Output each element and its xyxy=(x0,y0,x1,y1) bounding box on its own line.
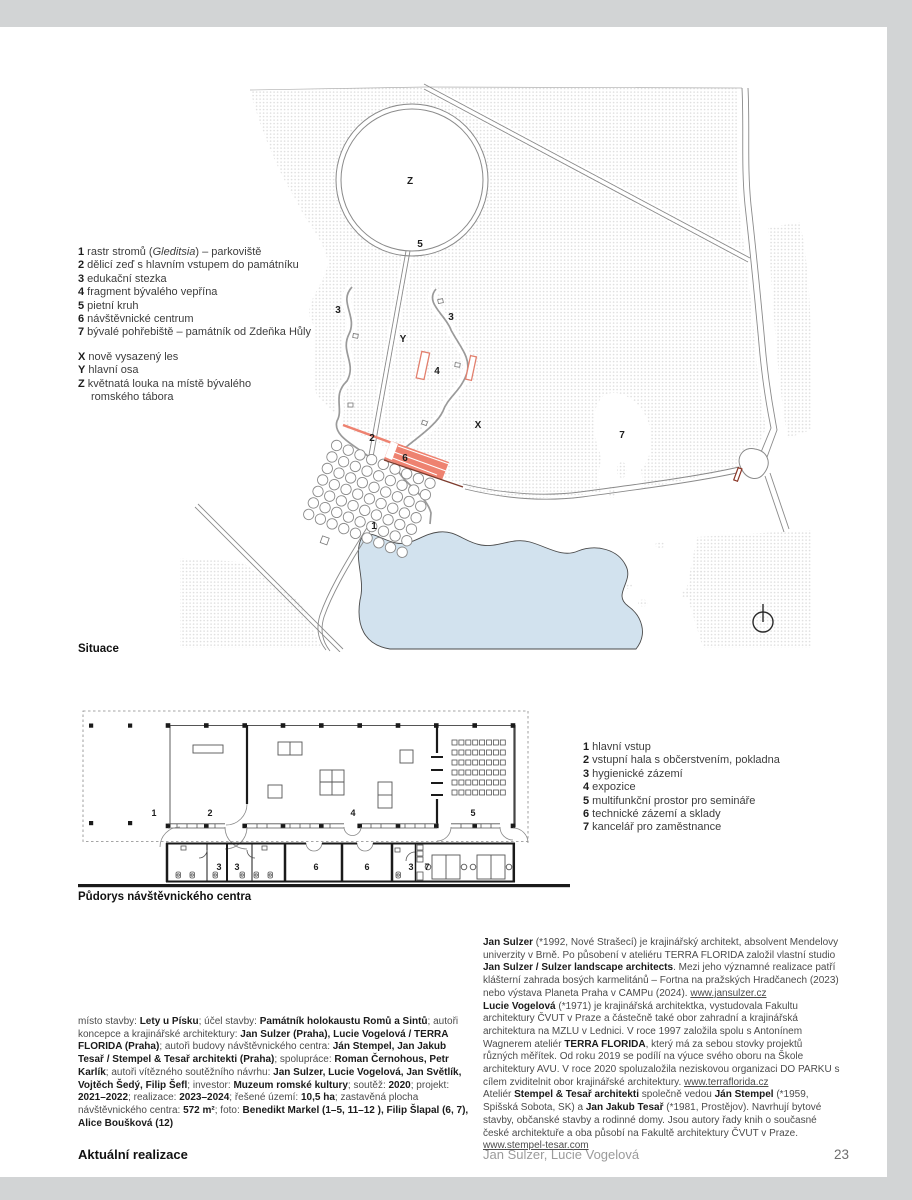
text-segment: 572 m² xyxy=(183,1105,215,1116)
legend-item: 5 pietní kruh xyxy=(78,300,378,313)
porch-posts xyxy=(89,724,132,826)
text-segment: 10,5 ha xyxy=(301,1092,335,1103)
text-segment: 2023–2024 xyxy=(179,1092,229,1103)
link[interactable]: www.jansulzer.cz xyxy=(690,988,766,999)
roof-outline xyxy=(83,711,528,842)
bio-jan-sulzer: Jan Sulzer (*1992, Nové Strašecí) je kra… xyxy=(483,937,840,1001)
legend-item: X nově vysazený les xyxy=(78,351,283,364)
text-segment: ; soutěž: xyxy=(348,1080,389,1091)
text-segment: kancelář pro zaměstnance xyxy=(589,821,721,833)
legend-item: Y hlavní osa xyxy=(78,364,283,377)
plan-label: 6 xyxy=(364,862,369,872)
site-plan-legend-letters: X nově vysazený lesY hlavní osaZ květnat… xyxy=(78,351,283,405)
legend-item: 2 dělicí zeď s hlavním vstupem do památn… xyxy=(78,259,378,272)
text-segment: Lucie Vogelová xyxy=(483,1001,556,1012)
text-segment: Stempel & Tesař architekti xyxy=(514,1089,639,1100)
text-segment: Ján Stempel xyxy=(715,1089,774,1100)
legend-item: Z květnatá louka na místě bývalého romsk… xyxy=(78,378,283,405)
text-segment: ; autoři budovy návštěvnického centra: xyxy=(159,1041,332,1052)
text-segment: ; realizace: xyxy=(128,1092,179,1103)
text-segment: dělicí zeď s hlavním vstupem do památník… xyxy=(84,259,299,271)
plan-label: 3 xyxy=(234,862,239,872)
legend-item: 7 kancelář pro zaměstnance xyxy=(583,821,853,834)
text-segment: Gleditsia xyxy=(153,246,196,258)
plan-label: 6 xyxy=(402,453,408,464)
text-segment: rastr stromů ( xyxy=(84,246,152,258)
text-segment: hlavní osa xyxy=(85,364,138,376)
page-background: Z53Y34X2617 1 rastr stromů (Gleditsia) –… xyxy=(0,0,912,1200)
text-segment: návštěvnické centrum xyxy=(84,313,193,325)
page-footer: Aktuální realizace Jan Sulzer, Lucie Vog… xyxy=(78,1147,849,1167)
text-segment: nově vysazený les xyxy=(85,351,178,363)
text-segment: fragment bývalého vepřína xyxy=(84,286,217,298)
walls xyxy=(166,723,516,828)
text-segment: bývalé pohřebiště – památník od Zdeňka H… xyxy=(84,326,311,338)
text-segment: hlavní vstup xyxy=(589,741,651,753)
legend-item: 1 rastr stromů (Gleditsia) – parkoviště xyxy=(78,246,378,259)
legend-item: 4 fragment bývalého vepřína xyxy=(78,286,378,299)
site-plan-legend-numbered: 1 rastr stromů (Gleditsia) – parkoviště2… xyxy=(78,246,378,340)
text-segment: Muzeum romské kultury xyxy=(233,1080,347,1091)
text-segment: Lety u Písku xyxy=(140,1016,199,1027)
plan-label: 1 xyxy=(371,521,377,532)
legend-item: 6 návštěvnické centrum xyxy=(78,313,378,326)
footer-section-title: Aktuální realizace xyxy=(78,1147,188,1162)
ground-line xyxy=(78,884,570,887)
legend-item: 4 expozice xyxy=(583,781,853,794)
text-segment: pietní kruh xyxy=(84,300,138,312)
text-segment: 2020 xyxy=(389,1080,411,1091)
text-segment: ; spolupráce: xyxy=(274,1054,334,1065)
seminar-chair-grid xyxy=(452,740,505,795)
text-segment: technické zázemí a sklady xyxy=(589,808,720,820)
text-segment: ; autoři vítězného soutěžního návrhu: xyxy=(106,1067,273,1078)
plan-label: 7 xyxy=(424,862,429,872)
text-segment: (*1992, Nové Strašecí) je krajinářský ar… xyxy=(483,937,838,961)
plan-label: 5 xyxy=(417,239,423,250)
text-segment: ; řešené území: xyxy=(229,1092,301,1103)
columns xyxy=(166,723,516,828)
plan-label: 3 xyxy=(448,312,454,323)
plan-label: X xyxy=(475,420,482,431)
legend-item: 1 hlavní vstup xyxy=(583,741,853,754)
text-segment: Památník holokaustu Romů a Sintů xyxy=(260,1016,428,1027)
text-segment: společně vedou xyxy=(639,1089,715,1100)
text-segment: 2021–2022 xyxy=(78,1092,128,1103)
bio-stempel-tesar: Ateliér Stempel & Tesař architekti spole… xyxy=(483,1089,840,1153)
plan-label: 2 xyxy=(369,433,375,444)
plan-label: 2 xyxy=(207,808,212,818)
floor-plan-labels: 1245336637 xyxy=(151,808,475,872)
legend-item: 3 hygienické zázemí xyxy=(583,768,853,781)
text-segment: Jan Sulzer xyxy=(483,937,533,948)
plan-label: 3 xyxy=(408,862,413,872)
text-segment: vstupní hala s občerstvením, pokladna xyxy=(589,754,780,766)
legend-item: 2 vstupní hala s občerstvením, pokladna xyxy=(583,754,853,767)
site-plan-caption: Situace xyxy=(78,643,119,655)
text-segment: ; projekt: xyxy=(411,1080,449,1091)
glazed-facade xyxy=(168,824,500,828)
text-segment: Ateliér xyxy=(483,1089,514,1100)
office-desks xyxy=(425,855,512,879)
floor-plan-drawing: 1245336637 xyxy=(70,703,575,895)
magazine-page: Z53Y34X2617 1 rastr stromů (Gleditsia) –… xyxy=(0,27,887,1177)
link[interactable]: www.terraflorida.cz xyxy=(684,1077,768,1088)
architect-bios: Jan Sulzer (*1992, Nové Strašecí) je kra… xyxy=(483,937,840,1153)
bio-lucie-vogelova: Lucie Vogelová (*1971) je krajinářská ar… xyxy=(483,1001,840,1090)
furniture xyxy=(193,742,413,808)
legend-item: 6 technické zázemí a sklady xyxy=(583,808,853,821)
plan-label: Y xyxy=(400,334,407,345)
text-segment: květnatá louka na místě bývalého romskéh… xyxy=(85,378,251,403)
footer-page-number: 23 xyxy=(834,1147,849,1162)
text-segment: ) – parkoviště xyxy=(195,246,261,258)
legend-item: 5 multifunkční prostor pro semináře xyxy=(583,795,853,808)
text-segment: multifunkční prostor pro semináře xyxy=(589,795,755,807)
plan-label: 3 xyxy=(216,862,221,872)
text-segment: Z xyxy=(78,378,85,390)
text-segment: hygienické zázemí xyxy=(589,768,683,780)
plan-label: 4 xyxy=(350,808,355,818)
text-segment: Jan Jakub Tesař xyxy=(586,1102,664,1113)
project-info: místo stavby: Lety u Písku; účel stavby:… xyxy=(78,1016,470,1130)
plan-label: 4 xyxy=(434,366,440,377)
text-segment: TERRA FLORIDA xyxy=(564,1039,645,1050)
text-segment: Jan Sulzer / Sulzer landscape architects xyxy=(483,962,673,973)
footer-authors: Jan Sulzer, Lucie Vogelová xyxy=(483,1147,639,1162)
plan-label: 6 xyxy=(313,862,318,872)
text-segment: ; investor: xyxy=(187,1080,233,1091)
floor-plan-legend: 1 hlavní vstup2 vstupní hala s občerstve… xyxy=(583,741,853,835)
legend-item: 3 edukační stezka xyxy=(78,273,378,286)
legend-item: 7 bývalé pohřebiště – památník od Zdeňka… xyxy=(78,326,378,339)
sanitary-fixtures xyxy=(176,845,423,880)
text-segment: místo stavby: xyxy=(78,1016,140,1027)
text-segment: ; účel stavby: xyxy=(199,1016,260,1027)
floor-plan-caption: Půdorys návštěvnického centra xyxy=(78,891,251,903)
plan-label: Z xyxy=(407,176,413,187)
plan-label: 5 xyxy=(470,808,475,818)
plan-label: 7 xyxy=(619,430,625,441)
plan-label: 1 xyxy=(151,808,156,818)
text-segment: ; foto: xyxy=(215,1105,243,1116)
text-segment: expozice xyxy=(589,781,635,793)
text-segment: edukační stezka xyxy=(84,273,167,285)
